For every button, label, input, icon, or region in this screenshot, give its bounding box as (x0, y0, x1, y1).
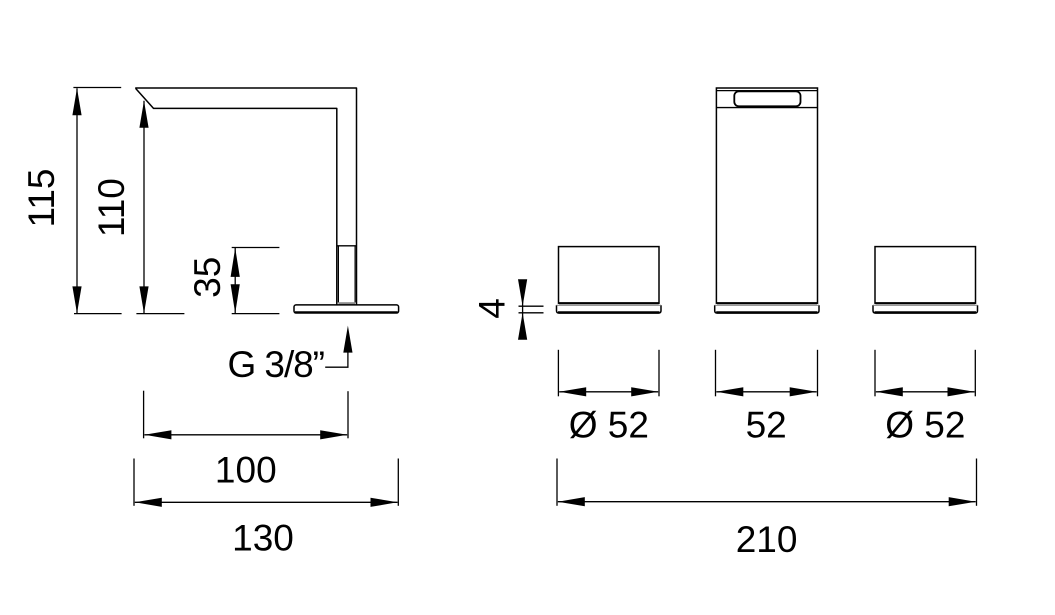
svg-text:Ø 52: Ø 52 (885, 405, 965, 446)
svg-text:4: 4 (471, 298, 512, 319)
svg-text:35: 35 (187, 257, 228, 298)
svg-text:110: 110 (91, 178, 132, 237)
svg-text:115: 115 (21, 169, 62, 228)
svg-text:130: 130 (232, 518, 294, 559)
svg-text:52: 52 (746, 405, 787, 446)
svg-text:100: 100 (215, 450, 277, 491)
svg-text:210: 210 (736, 519, 798, 560)
svg-text:Ø 52: Ø 52 (569, 405, 649, 446)
svg-text:G 3/8”: G 3/8” (228, 344, 326, 385)
